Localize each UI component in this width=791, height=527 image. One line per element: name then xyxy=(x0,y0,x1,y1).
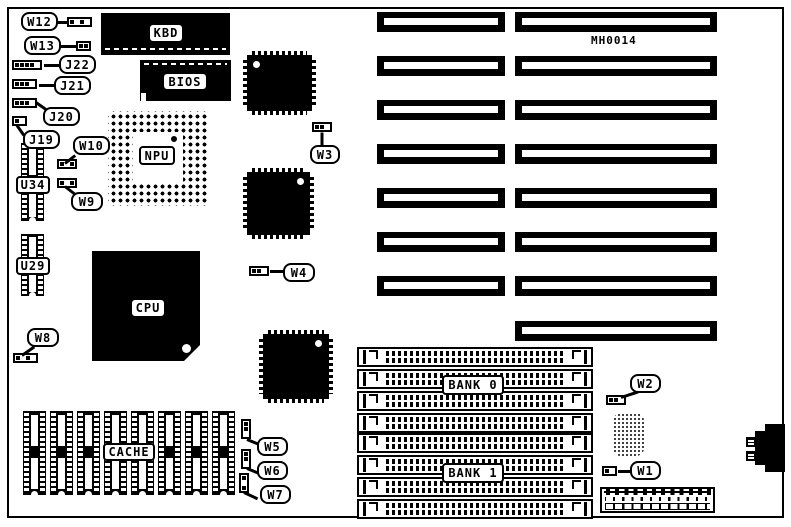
chip-label-kbd: KBD xyxy=(149,24,183,42)
pin-strip xyxy=(268,330,324,334)
jumper-pin xyxy=(609,398,613,402)
jumper-pin xyxy=(252,269,256,273)
jumper-label: W7 xyxy=(267,488,283,502)
bank1-label: BANK 1 xyxy=(442,463,504,483)
pin-strip xyxy=(252,168,305,172)
jumper-pin xyxy=(244,452,248,456)
jumper-pin xyxy=(15,119,19,123)
jumper-label: W6 xyxy=(264,464,280,478)
jumper-pin xyxy=(257,269,261,273)
pin-strip xyxy=(310,177,314,230)
jumper-pin xyxy=(80,20,84,24)
jumper-pin xyxy=(244,422,248,426)
jumper-pin xyxy=(20,119,24,123)
jumper-pin xyxy=(20,101,24,105)
chip-notch xyxy=(141,93,146,101)
isa-slot xyxy=(377,188,505,208)
jumper-pin xyxy=(25,82,29,86)
jumper-label: W2 xyxy=(637,377,653,391)
jumper-pin xyxy=(30,63,34,67)
chip-name: BIOS xyxy=(169,75,202,89)
isa-slot xyxy=(515,100,717,120)
keyboard-din-connector xyxy=(765,424,785,472)
jumper-pin xyxy=(60,181,64,185)
chip-name: U34 xyxy=(21,178,46,192)
jumper-pin xyxy=(20,82,24,86)
qfp-chip-1 xyxy=(247,55,312,111)
dip-channel xyxy=(29,237,36,258)
simm-socket xyxy=(357,433,593,453)
chip-label-cpu: CPU xyxy=(131,299,165,317)
jumper-w12-pins xyxy=(67,17,92,27)
jumper-pin xyxy=(315,125,319,129)
dip-notch xyxy=(29,217,36,221)
pin-strip xyxy=(252,111,307,115)
jumper-label: W9 xyxy=(79,195,95,209)
pin-strip xyxy=(605,497,710,501)
isa-slot xyxy=(515,321,717,341)
callout-w7: W7 xyxy=(260,485,291,504)
chip-label-u29: U29 xyxy=(16,257,50,275)
callout-w10: W10 xyxy=(73,136,110,155)
jumper-label: W1 xyxy=(637,464,653,478)
jumper-pin xyxy=(242,476,246,480)
jumper-pin xyxy=(26,356,30,360)
callout-j21: J21 xyxy=(54,76,91,95)
jumper-label: W4 xyxy=(291,266,307,280)
jumper-pin xyxy=(15,101,19,105)
callout-tail xyxy=(270,270,284,273)
pin-strip xyxy=(243,177,247,230)
pin-strip xyxy=(329,339,333,394)
cache-dip xyxy=(23,411,46,495)
power-connector xyxy=(600,487,715,513)
pin-strip xyxy=(605,503,710,510)
jumper-pin xyxy=(605,469,609,473)
chip-name: NPU xyxy=(145,149,170,163)
jumper-pin xyxy=(85,20,89,24)
jumper-pin xyxy=(244,457,248,461)
jumper-w4-pins xyxy=(249,266,269,276)
chip-dash-line xyxy=(105,48,226,50)
pin1-dot xyxy=(315,340,322,347)
isa-slot xyxy=(377,100,505,120)
jumper-pin xyxy=(610,469,614,473)
jumper-pin xyxy=(262,269,266,273)
callout-w2: W2 xyxy=(630,374,661,393)
callout-w13: W13 xyxy=(24,36,61,55)
jumper-label: J21 xyxy=(60,79,85,93)
jumper-pin xyxy=(16,356,20,360)
jumper-w3-pins xyxy=(312,122,332,132)
jumper-pin xyxy=(79,44,83,48)
jumper-pin xyxy=(70,20,74,24)
callout-j19: J19 xyxy=(23,130,60,149)
callout-w4: W4 xyxy=(283,263,315,282)
jumper-pin xyxy=(30,82,34,86)
dip-channel xyxy=(29,146,36,175)
oscillator-chip xyxy=(613,413,644,456)
chip-name: CPU xyxy=(136,301,161,315)
jumper-j19-pins xyxy=(12,116,27,126)
jumper-pin xyxy=(25,101,29,105)
jumper-pin xyxy=(242,486,246,490)
pin1-dot xyxy=(297,178,304,185)
isa-slot xyxy=(515,144,717,164)
pin-strip xyxy=(259,339,263,394)
chip-label-cache: CACHE xyxy=(103,443,155,461)
jumper-pin xyxy=(244,432,248,436)
jumper-pin xyxy=(35,63,39,67)
bank0-label: BANK 0 xyxy=(442,375,504,395)
jumper-label: W12 xyxy=(27,15,52,29)
callout-w8: W8 xyxy=(27,328,59,347)
jumper-pin xyxy=(614,398,618,402)
pin1-dot xyxy=(253,61,260,68)
chip-name: U29 xyxy=(21,259,46,273)
qfp-chip-3 xyxy=(263,334,329,399)
isa-slot xyxy=(377,232,505,252)
isa-slot xyxy=(515,56,717,76)
cache-dip xyxy=(50,411,73,495)
pin-strip xyxy=(604,491,711,493)
bank-name: BANK 0 xyxy=(448,378,497,392)
callout-tail xyxy=(44,64,60,67)
simm-socket xyxy=(357,499,593,519)
pin-strip xyxy=(252,235,305,239)
jumper-label: W3 xyxy=(317,148,333,162)
pin1-dot xyxy=(182,344,191,353)
board-id: MH0014 xyxy=(591,34,637,47)
jumper-pin xyxy=(320,125,324,129)
din-pin-block xyxy=(746,437,756,447)
pin-strip xyxy=(312,60,316,106)
callout-w1: W1 xyxy=(630,461,661,480)
jumper-label: W13 xyxy=(30,39,55,53)
callout-w3: W3 xyxy=(310,145,340,164)
isa-slot xyxy=(515,12,717,32)
callout-w6: W6 xyxy=(257,461,288,480)
cache-dip xyxy=(212,411,235,495)
jumper-pin xyxy=(84,44,88,48)
motherboard-diagram: W12 W13 J22 J21 J20 J19 W10 W9 U34 U29 W… xyxy=(0,0,791,527)
jumper-w6-pins xyxy=(241,449,251,469)
pin-strip xyxy=(243,60,247,106)
jumper-pin xyxy=(244,427,248,431)
keyboard-din-connector xyxy=(755,431,767,465)
jumper-pin xyxy=(31,356,35,360)
callout-w12: W12 xyxy=(21,12,58,31)
callout-tail xyxy=(39,84,55,87)
isa-slot xyxy=(377,276,505,296)
jumper-pin xyxy=(15,82,19,86)
simm-socket xyxy=(357,347,593,367)
callout-w5: W5 xyxy=(257,437,288,456)
callout-tail xyxy=(59,45,77,48)
cache-dip xyxy=(185,411,208,495)
jumper-pin xyxy=(15,63,19,67)
jumper-w5-pins xyxy=(241,419,251,439)
chip-label-u34: U34 xyxy=(16,176,50,194)
callout-j22: J22 xyxy=(59,55,96,74)
bank-name: BANK 1 xyxy=(448,466,497,480)
jumper-w13-pins xyxy=(76,41,91,51)
jumper-label: W5 xyxy=(264,440,280,454)
chip-label-npu: NPU xyxy=(139,146,175,165)
isa-slot xyxy=(515,232,717,252)
jumper-pin xyxy=(25,63,29,67)
jumper-label: J22 xyxy=(65,58,90,72)
jumper-label: J19 xyxy=(29,133,54,147)
board-id-text: MH0014 xyxy=(591,34,637,47)
jumper-pin xyxy=(75,20,79,24)
callout-j20: J20 xyxy=(43,107,80,126)
jumper-pin xyxy=(70,162,74,166)
jumper-j22-pins xyxy=(12,60,42,70)
pin-strip xyxy=(252,51,307,55)
chip-label-bios: BIOS xyxy=(163,73,207,90)
jumper-w1-pins xyxy=(602,466,617,476)
chip-name: KBD xyxy=(154,26,179,40)
isa-slot xyxy=(377,12,505,32)
cache-dip xyxy=(158,411,181,495)
dip-notch xyxy=(29,292,36,296)
jumper-label: J20 xyxy=(49,110,74,124)
callout-tail xyxy=(57,21,69,24)
chip-dash-line xyxy=(144,63,227,65)
isa-slot xyxy=(515,276,717,296)
jumper-pin xyxy=(20,63,24,67)
isa-slot xyxy=(515,188,717,208)
pin-strip xyxy=(268,399,324,403)
jumper-j21-pins xyxy=(12,79,37,89)
din-pin-block xyxy=(746,451,756,461)
isa-slot xyxy=(377,144,505,164)
jumper-pin xyxy=(244,462,248,466)
jumper-j20-pins xyxy=(12,98,37,108)
jumper-pin xyxy=(70,181,74,185)
jumper-label: W8 xyxy=(35,331,51,345)
jumper-pin xyxy=(242,481,246,485)
jumper-pin xyxy=(30,101,34,105)
qfp-chip-2 xyxy=(247,172,310,235)
simm-socket xyxy=(357,413,593,433)
pin1-dot xyxy=(171,136,177,142)
callout-w9: W9 xyxy=(71,192,103,211)
jumper-label: W10 xyxy=(79,139,104,153)
chip-name: CACHE xyxy=(108,445,149,459)
cache-dip xyxy=(77,411,100,495)
isa-slot xyxy=(377,56,505,76)
jumper-pin xyxy=(325,125,329,129)
